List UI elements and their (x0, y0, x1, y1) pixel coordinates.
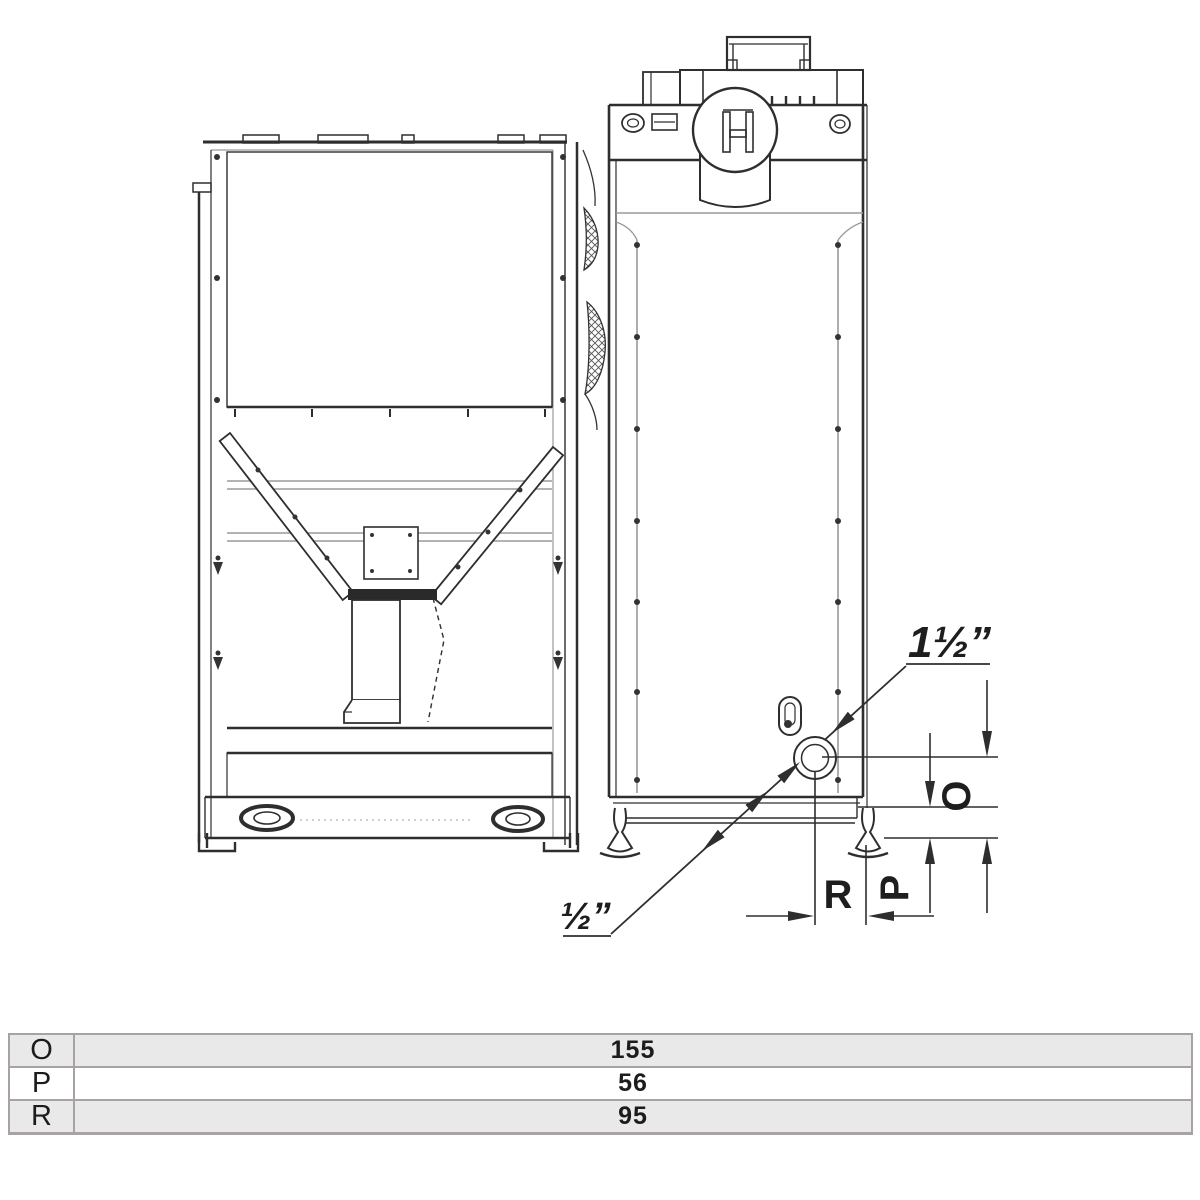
hopper-chute (344, 598, 444, 723)
dimension-annotations: 1½” ½” O P R (560, 618, 998, 938)
feed-connector (583, 150, 605, 430)
table-row-value: 56 (75, 1068, 1191, 1099)
hopper-feet (199, 833, 578, 851)
table-row-value: 95 (75, 1101, 1191, 1132)
table-row-label: R (10, 1101, 75, 1132)
dimension-table: O 155 P 56 R 95 (8, 1033, 1193, 1135)
boiler-flue-collar (727, 37, 810, 70)
boiler-unit (600, 37, 888, 857)
table-row-label: P (10, 1068, 75, 1099)
boiler-feet (600, 808, 888, 857)
pipe-size-label-bottom: ½” (560, 896, 611, 938)
hopper-upper-panel (227, 152, 552, 417)
thermowell-fitting (779, 697, 801, 735)
table-row: O 155 (10, 1035, 1191, 1068)
dim-p (925, 733, 935, 913)
boiler-fan-assembly (693, 88, 777, 207)
table-row: R 95 (10, 1101, 1191, 1132)
hopper-top-cap (203, 135, 567, 150)
hopper-access-plate (364, 527, 418, 579)
dim-label-o: O (935, 780, 979, 811)
technical-drawing-page: 1½” ½” O P R O 155 P 56 R 95 (0, 0, 1200, 1200)
table-row: P 56 (10, 1068, 1191, 1101)
hopper-unit (193, 135, 578, 851)
table-row-label: O (10, 1035, 75, 1066)
dim-label-p: P (873, 875, 917, 902)
hopper-panel-screws (214, 154, 566, 403)
boiler-base (609, 797, 863, 823)
boiler-body (609, 105, 867, 845)
table-row-value: 155 (75, 1035, 1191, 1066)
dim-o (982, 680, 992, 913)
boiler-panel-screws (634, 242, 841, 783)
pipe-size-label-top: 1½” (908, 618, 991, 667)
hopper-lower-section (227, 728, 552, 797)
hopper-base (205, 797, 570, 838)
dim-label-r: R (824, 873, 853, 917)
boiler-hopper-diagram: 1½” ½” O P R (0, 0, 1200, 1010)
